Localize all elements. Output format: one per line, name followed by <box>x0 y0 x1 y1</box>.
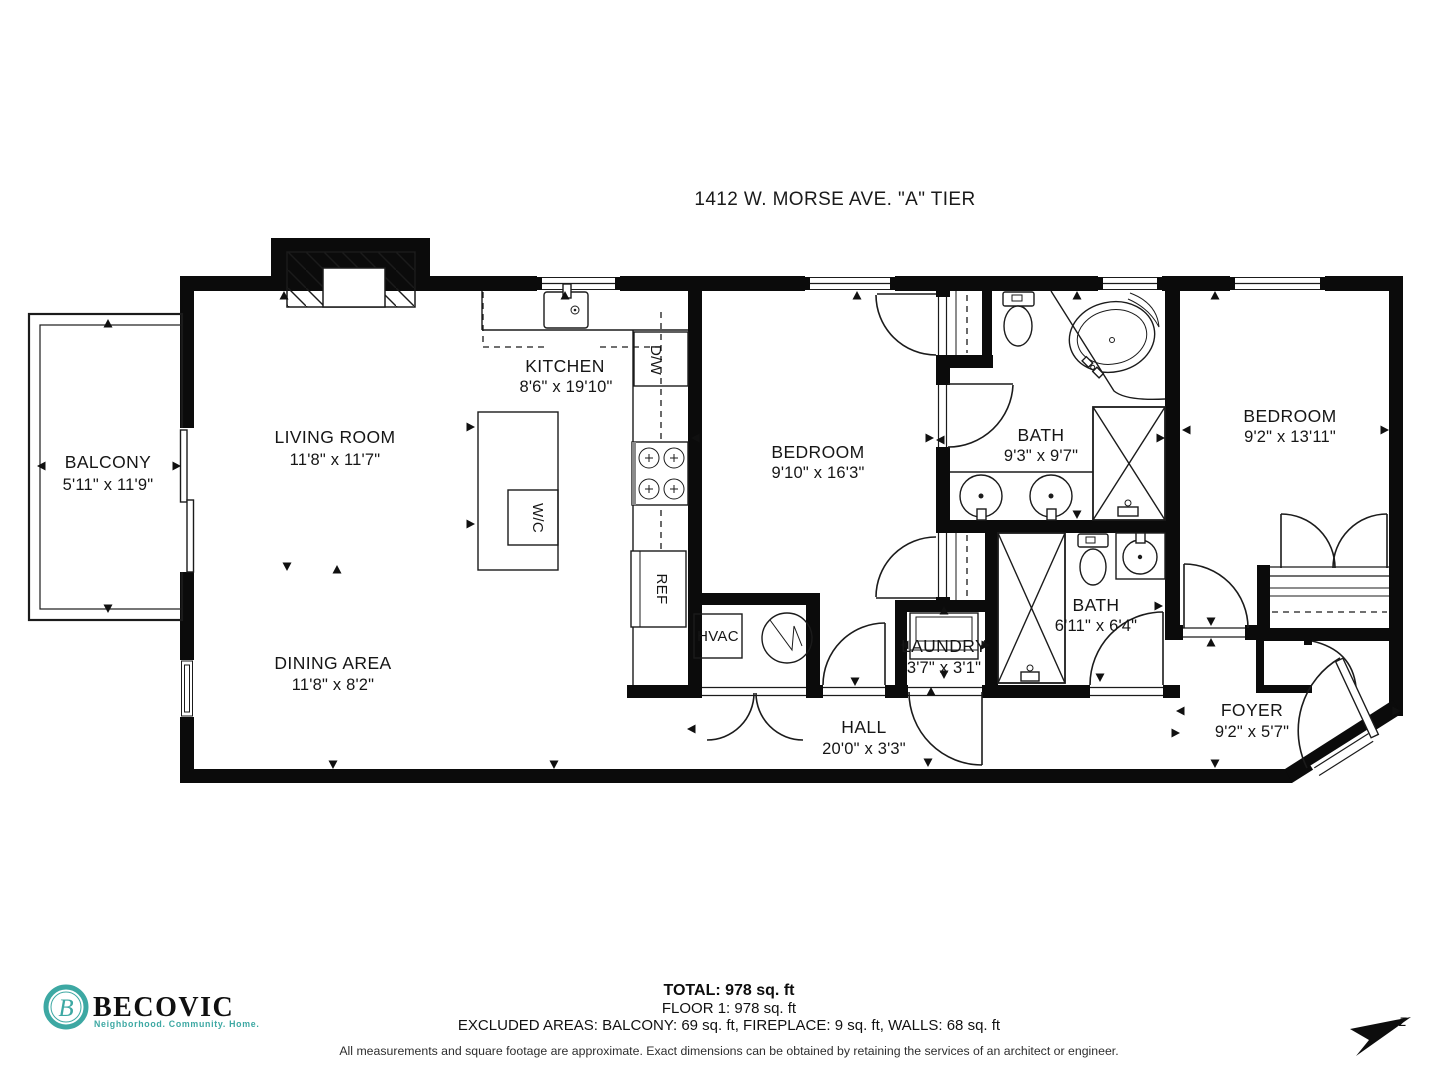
balcony-slider-door <box>180 428 194 572</box>
door-bedroom2-closet <box>1281 514 1387 568</box>
vanity-bath2 <box>1116 533 1165 579</box>
dims-bath1: 9'3" x 9'7" <box>1004 447 1078 465</box>
window-bedroom2 <box>1230 276 1325 291</box>
label-hall: HALL <box>841 717 886 737</box>
summary-block: TOTAL: 978 sq. ft FLOOR 1: 978 sq. ft EX… <box>339 982 1118 1058</box>
fireplace <box>287 252 415 307</box>
label-kitchen: KITCHEN <box>525 356 605 376</box>
door-hvac-right <box>756 693 803 740</box>
double-vanity-bath1 <box>950 472 1093 520</box>
walls <box>180 238 1403 783</box>
window-bedroom1 <box>805 276 895 291</box>
summary-total: TOTAL: 978 sq. ft <box>664 982 796 999</box>
label-dining-area: DINING AREA <box>274 653 391 673</box>
toilet-bath1 <box>1003 292 1034 346</box>
window-kitchen <box>537 276 620 291</box>
water-heater-icon <box>762 613 812 663</box>
label-dw: D/W <box>647 345 664 376</box>
label-hvac: HVAC <box>697 628 739 645</box>
label-bath1: BATH <box>1018 425 1065 445</box>
dims-balcony: 5'11" x 11'9" <box>63 476 154 494</box>
door-bedroom2 <box>1184 564 1248 628</box>
stove <box>632 442 688 505</box>
label-ref: REF <box>653 574 670 605</box>
label-wc: W/C <box>529 503 546 533</box>
becovic-logo: B BECOVIC Neighborhood. Community. Home. <box>46 987 260 1029</box>
door-closet1 <box>876 295 936 355</box>
dims-hall: 20'0" x 3'3" <box>822 740 906 758</box>
label-bedroom1: BEDROOM <box>771 442 864 462</box>
window-dining-left <box>180 660 194 717</box>
summary-excluded: EXCLUDED AREAS: BALCONY: 69 sq. ft, FIRE… <box>458 1017 1001 1034</box>
north-arrow-icon: z <box>1350 1013 1411 1056</box>
label-living-room: LIVING ROOM <box>274 427 395 447</box>
bedroom2-closet <box>1270 567 1389 612</box>
door-bath1 <box>948 385 1013 447</box>
dimension-arrows <box>37 291 1401 769</box>
door-closet2 <box>876 537 936 597</box>
floor-plan-page: 1412 W. MORSE AVE. "A" TIER <box>0 0 1440 1080</box>
dims-kitchen: 8'6" x 19'10" <box>519 378 612 396</box>
dims-bedroom2: 9'2" x 13'11" <box>1244 428 1336 446</box>
tub-faucet <box>1082 357 1103 378</box>
label-balcony: BALCONY <box>65 452 151 472</box>
logo-tagline: Neighborhood. Community. Home. <box>94 1019 260 1029</box>
hvac-closet <box>694 613 812 696</box>
plan-title: 1412 W. MORSE AVE. "A" TIER <box>694 189 975 210</box>
dims-foyer: 9'2" x 5'7" <box>1215 723 1289 741</box>
toilet-bath2 <box>1078 534 1108 585</box>
label-bath2: BATH <box>1073 595 1120 615</box>
logo-monogram: B <box>58 995 73 1022</box>
dims-dining-area: 11'8" x 8'2" <box>292 676 375 694</box>
corner-tub <box>1051 291 1165 399</box>
dims-living-room: 11'8" x 11'7" <box>290 451 381 469</box>
summary-floor: FLOOR 1: 978 sq. ft <box>662 1000 797 1017</box>
dims-laundry: 3'7" x 3'1" <box>907 659 981 677</box>
door-bedroom1 <box>823 623 885 685</box>
kitchen-island <box>478 412 558 570</box>
door-laundry <box>909 692 982 765</box>
dims-bedroom1: 9'10" x 16'3" <box>771 464 864 482</box>
label-bedroom2: BEDROOM <box>1243 406 1336 426</box>
north-arrow-label: z <box>1398 1013 1407 1030</box>
shower-bath2 <box>998 533 1065 683</box>
label-laundry: LAUNDRY <box>901 636 987 656</box>
floor-plan-drawing: 1412 W. MORSE AVE. "A" TIER <box>0 0 1440 1080</box>
shower-bath1 <box>1093 407 1165 520</box>
window-bath1 <box>1098 276 1162 291</box>
summary-disclaimer: All measurements and square footage are … <box>339 1044 1118 1058</box>
label-foyer: FOYER <box>1221 700 1283 720</box>
dims-bath2: 6'11" x 6'4" <box>1055 617 1138 635</box>
door-hvac-left <box>707 693 754 740</box>
